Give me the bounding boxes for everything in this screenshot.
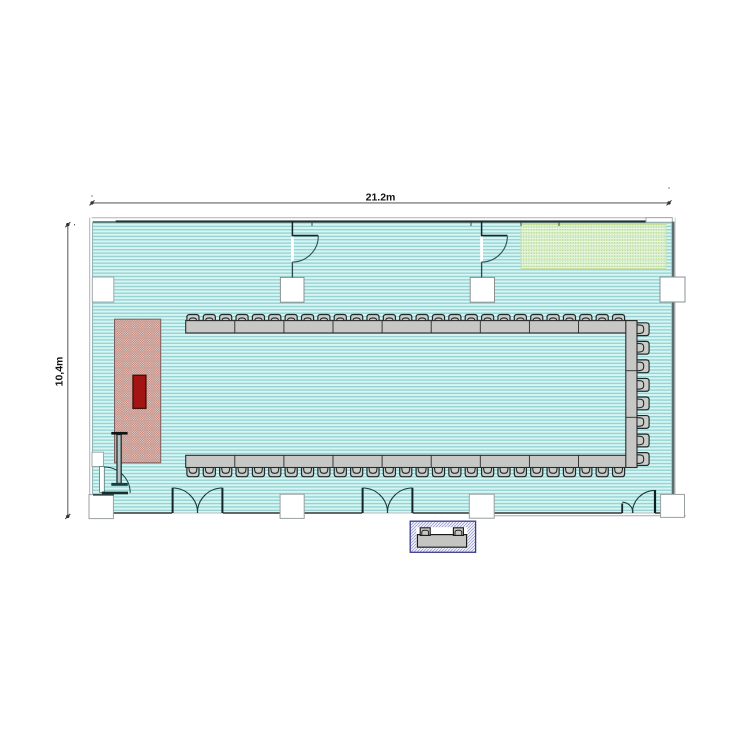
svg-text:21.2m: 21.2m — [366, 191, 396, 203]
svg-text:10,4m: 10,4m — [53, 357, 65, 387]
